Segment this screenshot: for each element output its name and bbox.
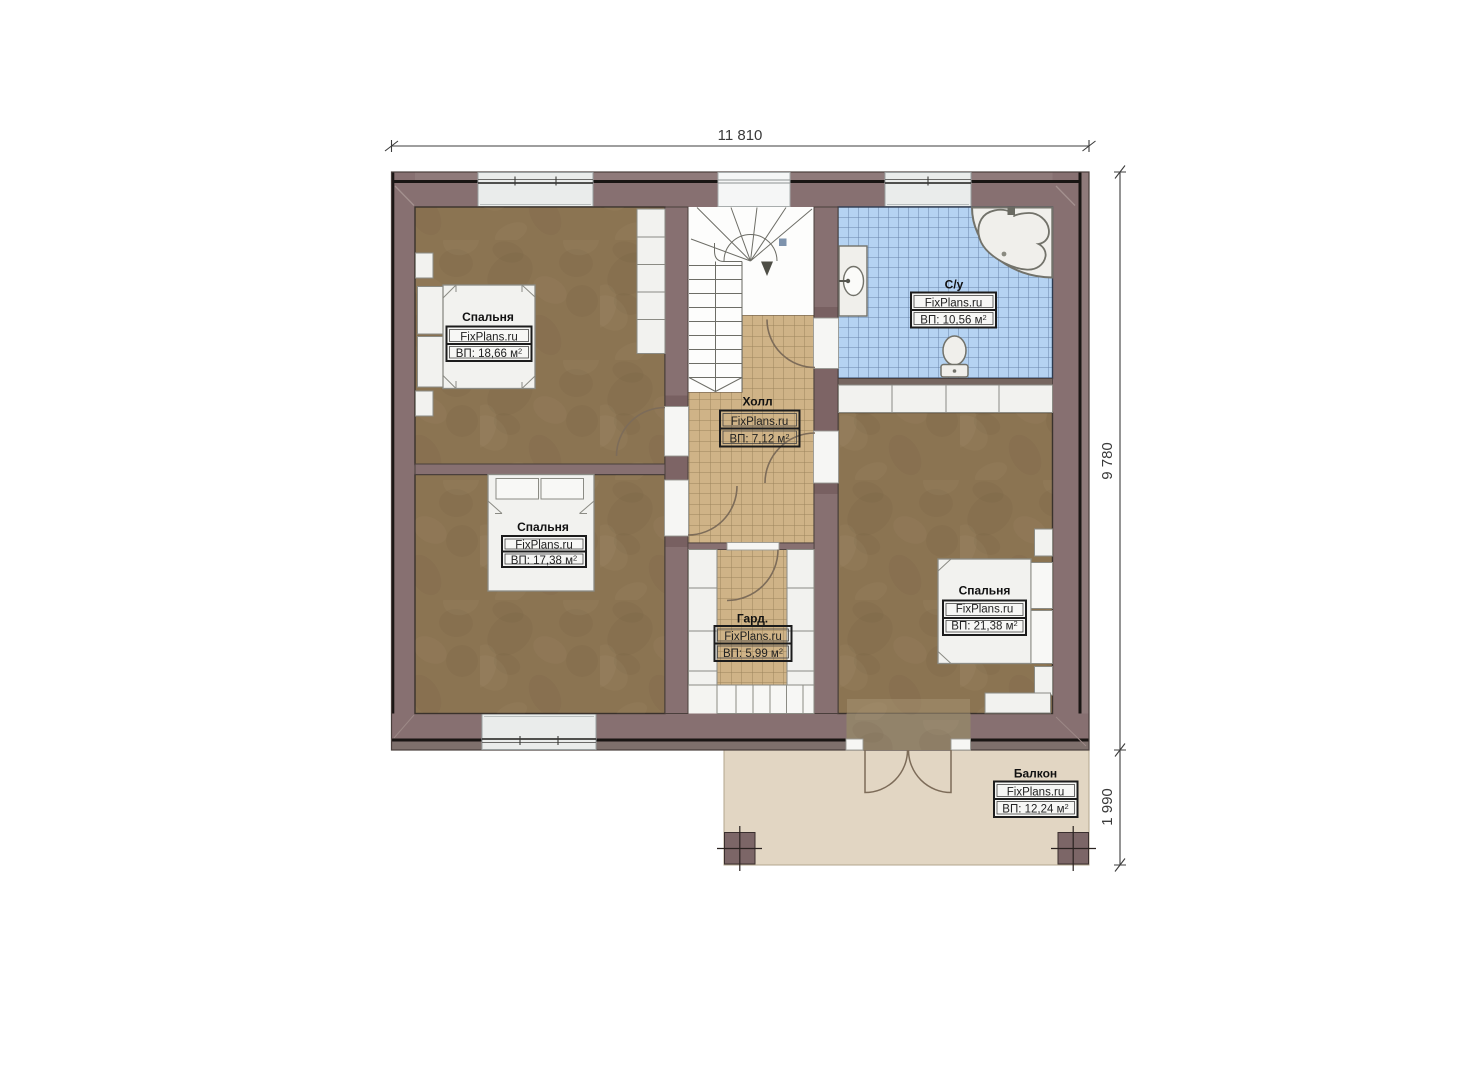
svg-text:ВП: 10,56 м2: ВП: 10,56 м2: [920, 313, 986, 327]
svg-text:ВП: 21,38 м2: ВП: 21,38 м2: [951, 619, 1017, 633]
svg-text:ВП: 18,66 м2: ВП: 18,66 м2: [456, 347, 522, 361]
svg-text:С/у: С/у: [945, 278, 964, 292]
svg-text:11 810: 11 810: [718, 127, 763, 144]
svg-text:Холл: Холл: [742, 395, 772, 409]
svg-text:FixPlans.ru: FixPlans.ru: [515, 540, 573, 552]
svg-text:FixPlans.ru: FixPlans.ru: [1007, 787, 1065, 799]
svg-text:9 780: 9 780: [1099, 442, 1116, 480]
svg-text:1 990: 1 990: [1099, 788, 1116, 826]
svg-text:FixPlans.ru: FixPlans.ru: [460, 332, 518, 344]
svg-text:Спальня: Спальня: [462, 310, 514, 324]
svg-text:Спальня: Спальня: [517, 520, 569, 534]
svg-text:FixPlans.ru: FixPlans.ru: [731, 416, 789, 428]
svg-text:FixPlans.ru: FixPlans.ru: [956, 604, 1014, 616]
svg-text:ВП: 5,99 м2: ВП: 5,99 м2: [723, 647, 783, 661]
svg-text:FixPlans.ru: FixPlans.ru: [925, 298, 983, 310]
svg-text:ВП: 17,38 м2: ВП: 17,38 м2: [511, 554, 577, 568]
svg-text:ВП: 12,24 м2: ВП: 12,24 м2: [1002, 802, 1068, 816]
svg-text:Балкон: Балкон: [1014, 767, 1057, 781]
svg-text:Спальня: Спальня: [959, 584, 1011, 598]
svg-text:FixPlans.ru: FixPlans.ru: [724, 631, 782, 643]
svg-text:ВП: 7,12 м2: ВП: 7,12 м2: [730, 432, 790, 446]
svg-text:Гард.: Гард.: [737, 612, 768, 626]
